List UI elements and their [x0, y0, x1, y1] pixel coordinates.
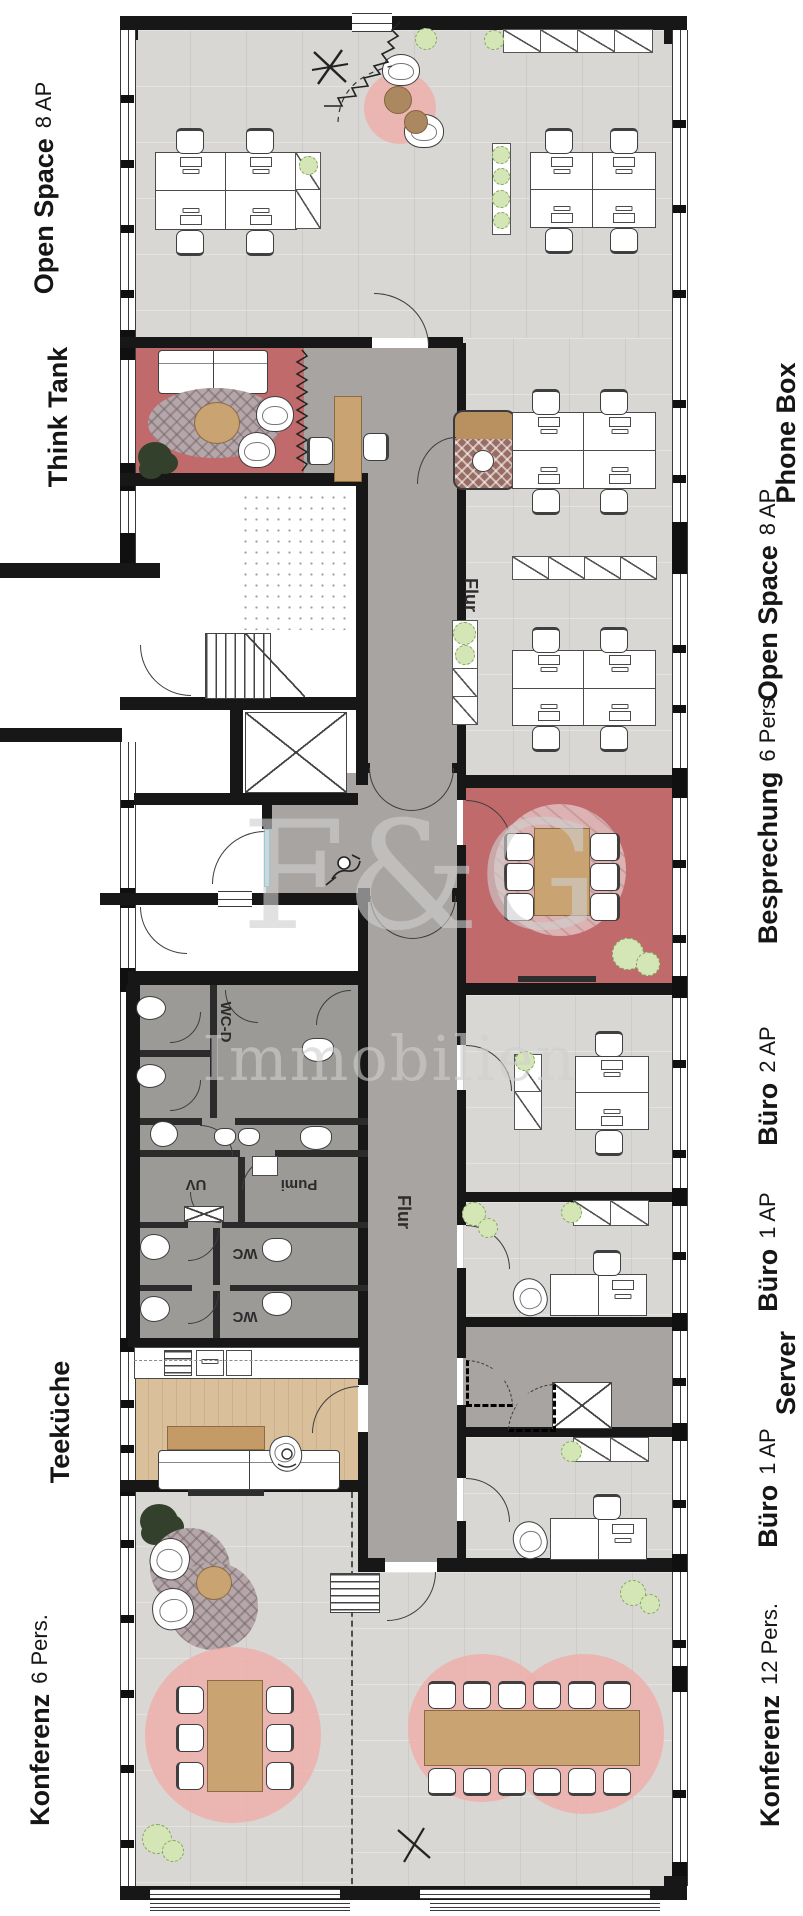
facade-column — [120, 533, 135, 563]
sink — [302, 1038, 334, 1062]
chair — [266, 1686, 294, 1714]
mullion — [121, 1445, 134, 1453]
wall-roomc-right-a — [262, 795, 272, 829]
chair — [504, 893, 534, 921]
mullion — [121, 225, 134, 233]
chair — [610, 128, 638, 154]
kitchen-table — [167, 1426, 265, 1450]
desk — [155, 152, 227, 192]
plant — [492, 190, 510, 208]
stool — [472, 450, 494, 472]
wall-corridor-right-4 — [457, 1268, 466, 1358]
desk-return — [550, 1274, 600, 1316]
label-wc-d: WC-D — [213, 982, 239, 1062]
chair — [600, 726, 628, 752]
wall-top-1 — [120, 16, 355, 30]
desk — [592, 189, 656, 228]
floor-plan: F&G Immobilien Open Space 8 AP Think Tan… — [0, 0, 803, 1916]
label-think-tank: Think Tank — [30, 307, 86, 527]
chair — [307, 437, 333, 465]
chair — [595, 1031, 623, 1057]
label-buero-1ap-b: Büro 1 AP — [740, 1378, 796, 1598]
wc-partition — [235, 1118, 368, 1125]
door-stub — [358, 888, 370, 902]
mullion — [121, 1765, 134, 1773]
desk — [598, 1274, 647, 1316]
mullion — [673, 1790, 686, 1798]
mullion — [673, 1500, 686, 1508]
projection-screen — [188, 1490, 264, 1496]
chair — [504, 863, 534, 891]
sink — [238, 1128, 260, 1146]
wall-openspace-bottom-1 — [120, 337, 372, 348]
desk — [225, 190, 297, 230]
chair — [533, 1681, 561, 1709]
label-konferenz-12: Konferenz 12 Pers. — [742, 1605, 798, 1825]
chair — [590, 833, 620, 861]
chair — [593, 1250, 621, 1276]
mullion — [673, 860, 686, 868]
mullion — [673, 935, 686, 943]
shelf — [512, 556, 550, 580]
shelf — [452, 668, 478, 698]
person-walking — [318, 845, 366, 889]
label-teekueche: Teeküche — [32, 1312, 88, 1532]
chair — [246, 230, 274, 256]
chair — [610, 228, 638, 254]
armchair — [256, 396, 294, 432]
mullion — [673, 1150, 686, 1158]
shelf — [584, 556, 622, 580]
chair — [363, 433, 389, 461]
wall-thinktank-bottom — [120, 473, 358, 486]
plant — [561, 1202, 582, 1223]
mullion — [121, 1840, 134, 1848]
chair — [603, 1768, 631, 1796]
chair — [428, 1768, 456, 1796]
chair — [595, 1130, 623, 1156]
plant — [493, 212, 510, 229]
chair — [532, 489, 560, 515]
tripod-stand — [394, 1824, 436, 1866]
chair — [246, 128, 274, 154]
plant — [515, 1051, 535, 1071]
partition-dashed — [351, 1492, 355, 1884]
wc-partition — [140, 1285, 192, 1291]
window-sill-2 — [430, 1903, 660, 1911]
wall-stair-bottom — [120, 697, 208, 710]
high-table — [334, 396, 362, 482]
appliance — [164, 1350, 192, 1376]
mullion — [673, 1378, 686, 1386]
chair — [568, 1681, 596, 1709]
coffee-table — [194, 402, 240, 444]
shelf — [620, 556, 657, 580]
desk — [225, 152, 297, 192]
plant — [640, 1594, 660, 1614]
window-bottom-1 — [150, 1889, 340, 1899]
tripod-lamp — [308, 44, 352, 90]
chair — [600, 389, 628, 415]
desk-return — [550, 1518, 600, 1560]
plant — [561, 1441, 582, 1462]
chair — [600, 489, 628, 515]
desk — [575, 1056, 649, 1094]
chair — [176, 230, 204, 256]
desk — [512, 650, 585, 690]
chair — [498, 1768, 526, 1796]
chair — [600, 627, 628, 653]
kitchen-sink — [196, 1350, 224, 1376]
shelf — [503, 29, 542, 53]
wc-partition — [222, 1222, 368, 1228]
wc-partition — [275, 1150, 368, 1157]
wall-besprechung-b2 — [457, 983, 672, 995]
label-flur-2: Flur — [390, 1172, 418, 1252]
stub-wall-a — [0, 563, 160, 578]
wall-wc-bottom — [128, 1338, 368, 1347]
plant-dark — [138, 442, 172, 472]
elevator — [245, 712, 347, 793]
chair — [463, 1681, 491, 1709]
facade-column — [672, 768, 687, 798]
desk — [530, 189, 594, 228]
desk — [583, 650, 656, 690]
facade-column — [672, 1313, 687, 1331]
conference-table-6 — [207, 1680, 263, 1792]
plant — [162, 1840, 184, 1862]
utility-box — [184, 1206, 224, 1222]
side-return — [295, 189, 321, 229]
wall-junction-1 — [128, 893, 218, 905]
kitchen-sofa — [158, 1450, 340, 1490]
sink — [300, 1126, 332, 1150]
mullion — [121, 1615, 134, 1623]
desk — [155, 190, 227, 230]
person-sitting — [272, 1440, 302, 1474]
chair — [532, 627, 560, 653]
chair — [590, 863, 620, 891]
shelf — [614, 29, 653, 53]
stairs-diagonal — [245, 633, 305, 697]
corridor-upper — [368, 473, 457, 773]
chair — [176, 1762, 204, 1790]
shelf — [610, 1200, 649, 1226]
label-open-space-right: Open Space 8 AP — [740, 485, 796, 705]
projection-screen — [518, 976, 596, 982]
shelf — [514, 1091, 542, 1130]
plant — [415, 28, 437, 50]
plant — [484, 30, 504, 50]
wall-elevator-bottom — [134, 793, 358, 805]
mullion — [121, 95, 134, 103]
chair — [545, 228, 573, 254]
wall-b1a-server — [457, 1317, 672, 1327]
mullion — [121, 1540, 134, 1548]
wall-os2-besprechung — [457, 775, 672, 788]
label-wc-2: WC — [215, 1306, 275, 1328]
chair — [593, 1494, 621, 1520]
stove — [226, 1350, 252, 1376]
window-bottom-2 — [420, 1889, 650, 1899]
label-flur-1: Flur — [457, 555, 485, 635]
mullion — [673, 1640, 686, 1648]
label-konferenz-6: Konferenz 6 Pers. — [12, 1610, 68, 1830]
window-junction — [218, 891, 252, 907]
shelf — [452, 696, 478, 725]
chair — [533, 1768, 561, 1796]
desk — [583, 412, 656, 452]
window-sill-1 — [150, 1903, 350, 1911]
plant — [636, 952, 660, 976]
wc-partition — [140, 1050, 217, 1057]
facade-column — [672, 1554, 687, 1572]
mullion — [673, 400, 686, 408]
mullion — [673, 645, 686, 653]
stub-wall-b — [0, 728, 122, 742]
chair — [545, 128, 573, 154]
plant — [455, 645, 475, 665]
facade-column — [672, 1423, 687, 1441]
mullion — [673, 120, 686, 128]
facade-column — [672, 1188, 687, 1206]
facade-column — [672, 976, 687, 998]
chair — [176, 128, 204, 154]
desk — [512, 688, 585, 726]
mullion — [673, 1252, 686, 1260]
wall-corridor-right-2 — [457, 845, 466, 1045]
wall-corridor-right-5 — [457, 1405, 466, 1478]
chair — [504, 833, 534, 861]
chair — [603, 1681, 631, 1709]
shelf — [577, 29, 616, 53]
chair — [532, 726, 560, 752]
desk — [512, 450, 585, 489]
chair — [176, 1686, 204, 1714]
mullion — [673, 475, 686, 483]
door-lobby — [140, 907, 187, 954]
label-besprechung: Besprechung 6 Pers. — [740, 708, 796, 928]
sink — [214, 1128, 236, 1146]
label-uv: UV — [166, 1174, 226, 1196]
armchair — [238, 432, 276, 468]
desk — [583, 688, 656, 726]
chair — [266, 1762, 294, 1790]
window-band-right — [672, 30, 688, 1886]
mullion — [121, 1690, 134, 1698]
coffee-table — [196, 1566, 232, 1600]
shelf — [540, 29, 579, 53]
mullion — [673, 1060, 686, 1068]
wall-wc-top — [128, 971, 368, 985]
desk — [575, 1092, 649, 1130]
shelf — [548, 556, 586, 580]
plant — [478, 1218, 498, 1238]
mullion — [121, 800, 134, 808]
mullion — [121, 1400, 134, 1408]
beanbag — [404, 110, 428, 134]
counter-dashed-line — [134, 1360, 358, 1361]
void-dotted-area — [240, 492, 352, 630]
chair — [176, 1724, 204, 1752]
conference-table-12 — [424, 1710, 640, 1766]
meeting-table — [534, 828, 590, 916]
mullion — [121, 290, 134, 298]
plant — [493, 168, 510, 185]
chair — [463, 1768, 491, 1796]
wall-junction-2 — [252, 893, 368, 905]
chair — [428, 1681, 456, 1709]
shelf — [610, 1437, 649, 1462]
desk — [583, 450, 656, 489]
desk — [598, 1518, 647, 1560]
chair — [498, 1681, 526, 1709]
wall-b1b-k12-2 — [437, 1558, 672, 1572]
desk — [592, 152, 656, 191]
corner-bottom-right — [664, 1876, 687, 1900]
mullion — [121, 160, 134, 168]
chair — [532, 389, 560, 415]
wc-partition — [230, 1285, 368, 1291]
chair — [590, 893, 620, 921]
label-wc-1: WC — [215, 1243, 275, 1265]
wc-left-wall — [126, 985, 140, 1338]
facade-column — [672, 522, 687, 574]
label-open-space-left: Open Space 8 AP — [16, 78, 72, 298]
wall-shaft-right — [356, 473, 368, 785]
wall-top-2 — [389, 16, 668, 30]
wc-partition — [140, 1222, 188, 1228]
sideboard — [330, 1573, 380, 1613]
facade-column — [672, 1666, 687, 1692]
wall-junction-stub-l — [100, 893, 128, 905]
desk — [530, 152, 594, 191]
desk — [512, 412, 585, 452]
chair — [568, 1768, 596, 1796]
wall-elevator-left — [230, 710, 243, 793]
door-stair-room — [140, 645, 191, 696]
server-rack — [552, 1382, 612, 1429]
door-roomc — [212, 831, 265, 884]
mullion — [673, 705, 686, 713]
wall-teekueche-right-2 — [358, 1432, 368, 1562]
mullion — [673, 205, 686, 213]
chair — [266, 1724, 294, 1752]
plant — [492, 146, 510, 164]
label-pumi: Pumi — [269, 1174, 329, 1196]
wall-corridor-right-6 — [457, 1521, 466, 1562]
plant — [299, 156, 318, 175]
small-sink — [252, 1156, 278, 1176]
mullion — [673, 290, 686, 298]
